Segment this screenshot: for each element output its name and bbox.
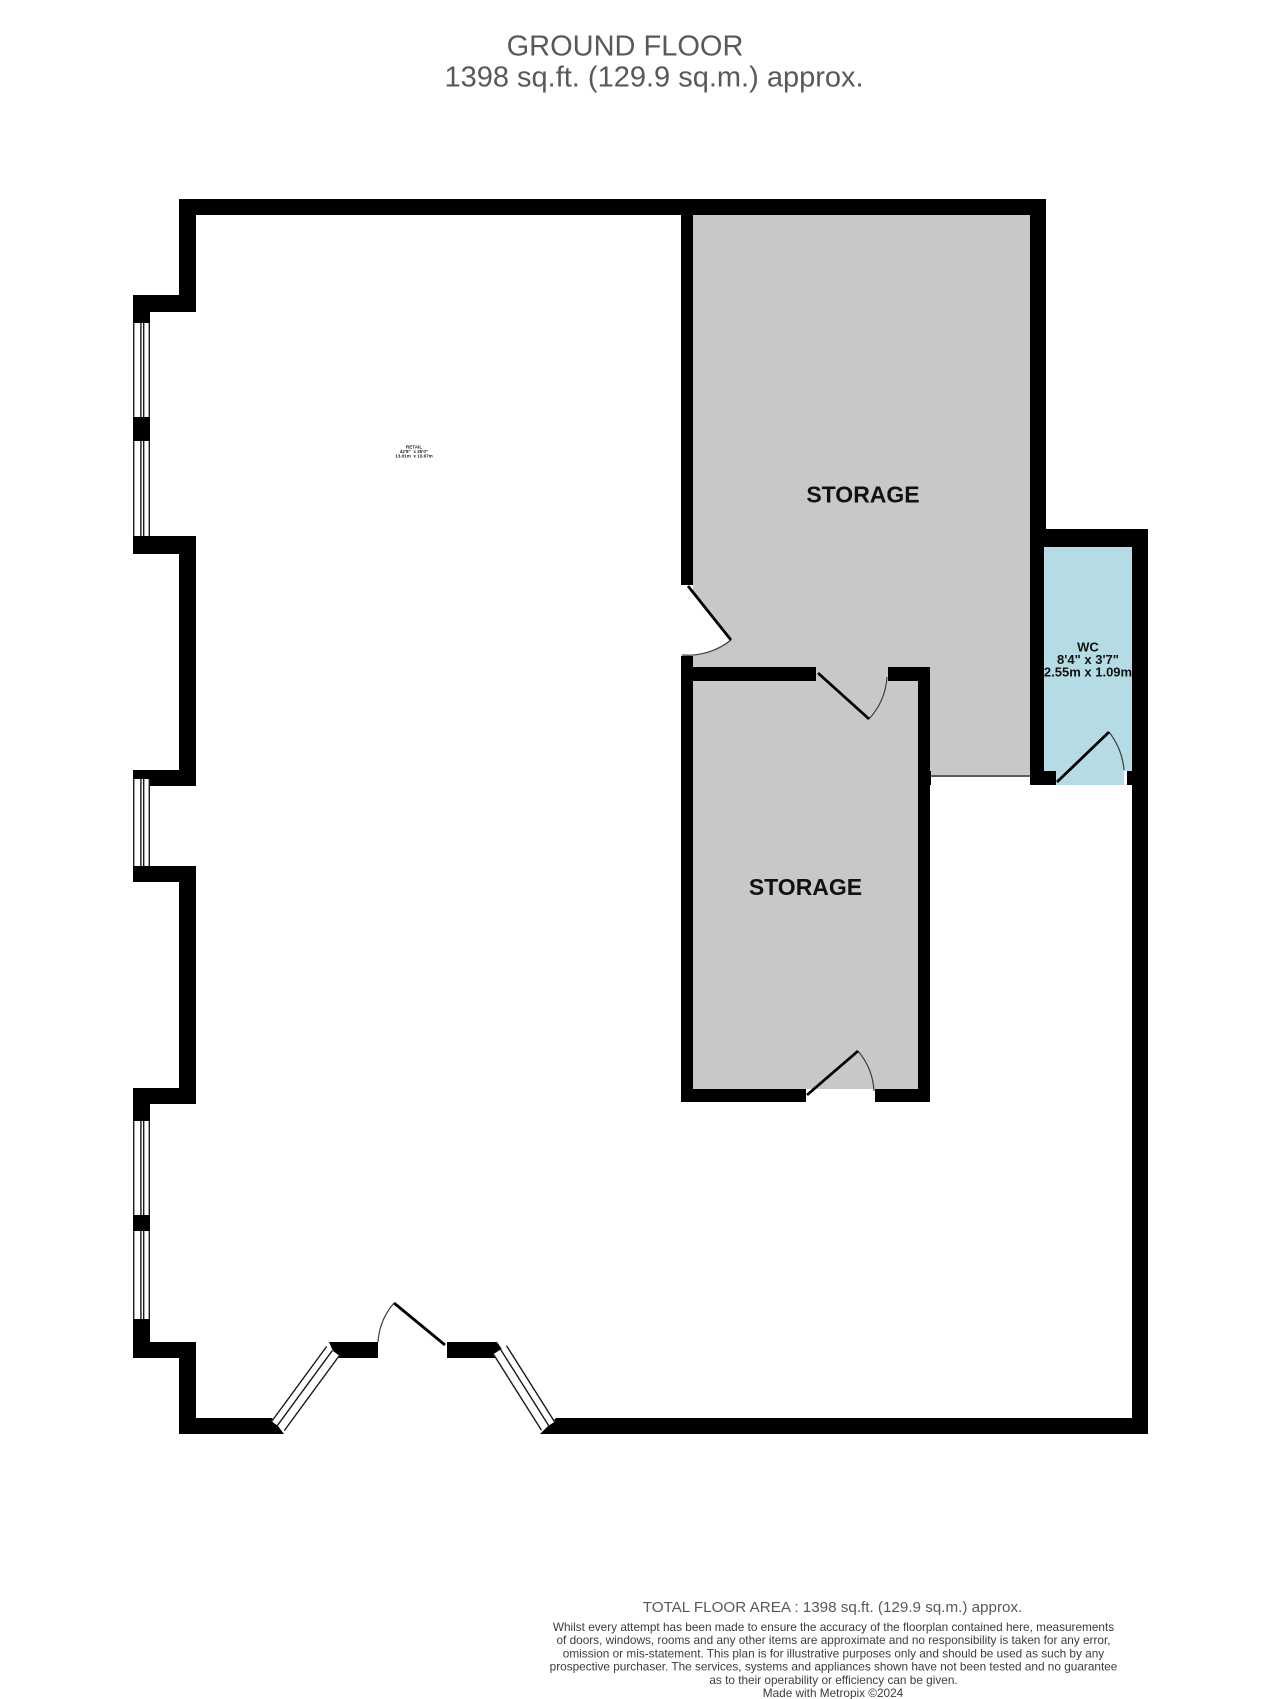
svg-text:Whilst every attempt has been: Whilst every attempt has been made to en…	[553, 1620, 1114, 1634]
svg-text:as to their operability or eff: as to their operability or efficiency ca…	[709, 1673, 957, 1687]
svg-text:of doors, windows, rooms and a: of doors, windows, rooms and any other i…	[556, 1633, 1110, 1647]
svg-text:STORAGE: STORAGE	[806, 482, 919, 508]
svg-text:13.01m x 10.67m: 13.01m x 10.67m	[395, 454, 433, 459]
svg-text:2.55m x 1.09m: 2.55m x 1.09m	[1044, 665, 1132, 680]
svg-text:Made with Metropix ©2024: Made with Metropix ©2024	[763, 1686, 904, 1699]
svg-text:prospective purchaser. The ser: prospective purchaser. The services, sys…	[550, 1660, 1118, 1674]
svg-text:GROUND FLOOR: GROUND FLOOR	[507, 31, 744, 63]
svg-text:1398 sq.ft. (129.9 sq.m.) appr: 1398 sq.ft. (129.9 sq.m.) approx.	[444, 62, 863, 94]
svg-text:omission or mis-statement. Thi: omission or mis-statement. This plan is …	[563, 1646, 1104, 1660]
svg-text:STORAGE: STORAGE	[749, 874, 862, 900]
svg-text:TOTAL FLOOR AREA : 1398 sq.ft.: TOTAL FLOOR AREA : 1398 sq.ft. (129.9 sq…	[643, 1599, 1023, 1616]
